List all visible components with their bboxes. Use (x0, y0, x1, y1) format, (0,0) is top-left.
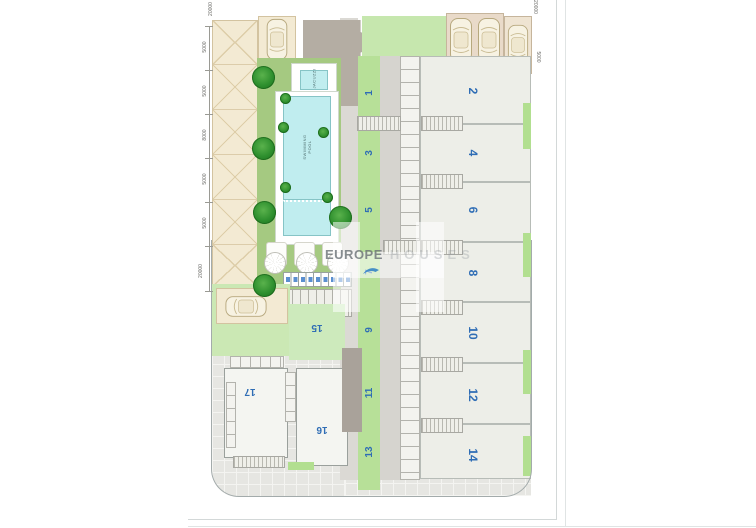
dimension-tick (205, 26, 213, 27)
dimension-label: 8000 (202, 124, 208, 146)
unit-number: 6 (466, 199, 480, 221)
stairs-hatch (421, 174, 463, 189)
unit-number: 17 (239, 385, 261, 399)
tree (252, 137, 275, 160)
tree (318, 127, 329, 138)
tree (280, 182, 291, 193)
pool-label: SWIMMING POOL (302, 132, 312, 162)
dimension-label: 5000 (202, 168, 208, 190)
stairs-hatch (421, 116, 463, 131)
page-border-horizontal-inner (188, 519, 557, 520)
unit-number: 1 (362, 82, 376, 104)
dimension-label: 5000 (202, 36, 208, 58)
unit-number: 11 (362, 382, 376, 404)
unit-number: 4 (466, 142, 480, 164)
stairs-hatch (357, 116, 401, 131)
watermark-text: EUROPEHOUSES (325, 247, 475, 262)
site-plan-page: JACUZZI SWIMMING POOL 1 3 5 7 9 11 13 2 … (0, 0, 756, 528)
dimension-tick (205, 246, 213, 247)
jacuzzi-label: JACUZZI (312, 64, 317, 94)
tree (278, 122, 289, 133)
unit-number: 14 (466, 444, 480, 466)
unit-number: 5 (362, 199, 376, 221)
page-border-vertical-inner (556, 0, 557, 520)
kids-pool (283, 200, 331, 236)
carport-bay (213, 21, 257, 65)
dimension-label: 5000 (202, 80, 208, 102)
unit-number: 12 (466, 384, 480, 406)
dimension-line (209, 26, 210, 292)
carport-bay (213, 110, 257, 155)
dimension-label: 5000 (535, 46, 541, 68)
watermark-brand-light: HOUSES (390, 247, 475, 262)
dimension-label: 20000 (208, 0, 214, 20)
dimension-label: 5000 (202, 212, 208, 234)
unit-number: 16 (311, 423, 333, 437)
tree (322, 192, 333, 203)
unit-number: 2 (466, 80, 480, 102)
tree (252, 66, 275, 89)
carport-bay (213, 200, 257, 245)
unit-number: 3 (362, 142, 376, 164)
watermark-swoosh-icon (362, 266, 380, 275)
unit-number: 8 (466, 262, 480, 284)
watermark-brand-strong: EUROPE (325, 247, 383, 262)
dimension-tick (205, 291, 213, 292)
tree (280, 93, 291, 104)
unit-number: 10 (466, 322, 480, 344)
tree (253, 201, 276, 224)
dimension-label: 20000 (198, 260, 204, 282)
parked-car (264, 18, 290, 61)
dimension-label: 20000 (532, 0, 538, 18)
dimension-tick (205, 70, 213, 71)
unit-number: 9 (362, 319, 376, 341)
page-border-horizontal-outer (188, 526, 756, 527)
dimension-tick (205, 114, 213, 115)
tree (253, 274, 276, 297)
page-border-vertical-outer (565, 0, 566, 527)
dimension-tick (205, 158, 213, 159)
dimension-tick (205, 202, 213, 203)
carport-bay (213, 155, 257, 200)
lawn-top (362, 16, 446, 58)
unit-number: 13 (362, 441, 376, 463)
facade-garden-bar (523, 103, 531, 149)
carport-bay (213, 65, 257, 110)
unit-number: 15 (306, 321, 328, 335)
